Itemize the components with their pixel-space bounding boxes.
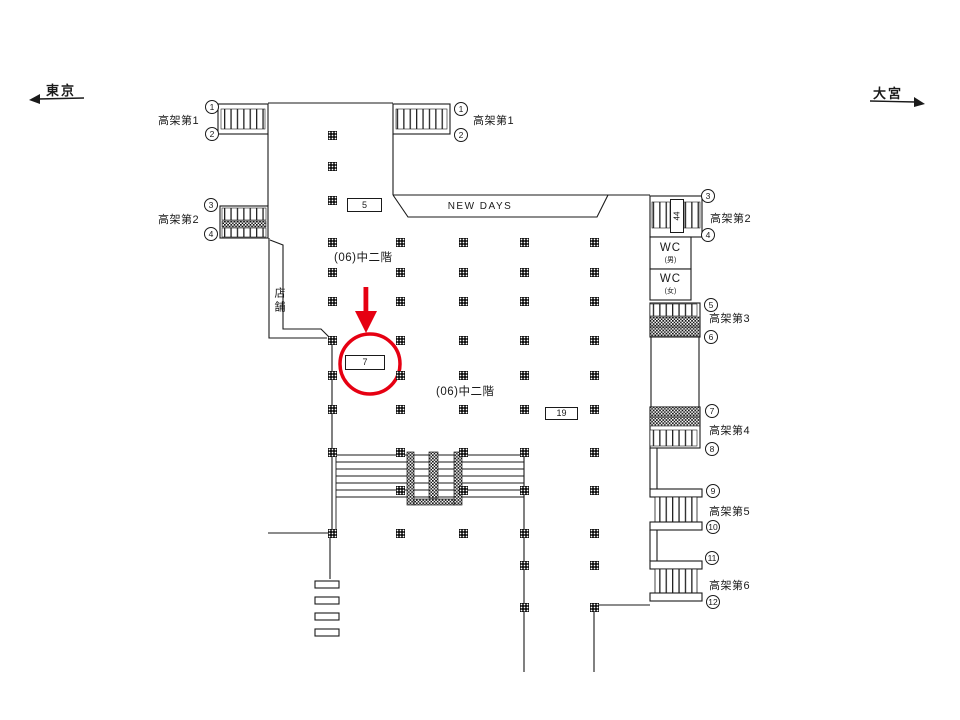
wc-men-label: WC (男) xyxy=(650,239,691,267)
escalator-segments xyxy=(315,581,339,636)
pillar xyxy=(520,448,529,457)
pillar xyxy=(328,336,337,345)
highlight-annotation xyxy=(340,287,400,394)
pillar xyxy=(328,196,337,205)
pillar xyxy=(328,371,337,380)
position-number-9: 9 xyxy=(706,484,720,498)
pillar xyxy=(520,371,529,380)
pillar xyxy=(520,405,529,414)
position-number-7: 7 xyxy=(705,404,719,418)
position-number-4-left: 4 xyxy=(204,227,218,241)
position-number-6: 6 xyxy=(704,330,718,344)
pillar xyxy=(459,405,468,414)
direction-label-omiya: 大宮 xyxy=(873,83,903,102)
shop-label: 店舗 xyxy=(271,287,287,315)
wc-women-gender: (女) xyxy=(665,286,677,296)
pillar xyxy=(459,238,468,247)
floorplan-linework xyxy=(0,0,960,720)
stairs-kouka6-right xyxy=(650,561,702,601)
pillar xyxy=(520,603,529,612)
pillar xyxy=(459,486,468,495)
label-kouka2-left: 高架第2 xyxy=(158,211,199,227)
pillar xyxy=(328,162,337,171)
label-kouka4-right: 高架第4 xyxy=(709,422,750,438)
position-number-1-left: 1 xyxy=(205,100,219,114)
pillar xyxy=(590,371,599,380)
pillar xyxy=(459,448,468,457)
highlight-arrow-head xyxy=(355,311,377,333)
position-number-1-top: 1 xyxy=(454,102,468,116)
pillar xyxy=(328,131,337,140)
direction-label-tokyo: 東京 xyxy=(46,80,76,99)
position-number-8: 8 xyxy=(705,442,719,456)
pillar xyxy=(396,268,405,277)
pillar xyxy=(520,268,529,277)
pillar xyxy=(590,405,599,414)
pillar xyxy=(396,486,405,495)
pillar xyxy=(459,529,468,538)
pillar xyxy=(396,297,405,306)
highlight-arrow-shaft xyxy=(364,287,369,313)
pillar xyxy=(328,448,337,457)
position-number-2-top: 2 xyxy=(454,128,468,142)
stairs-kouka4-right xyxy=(650,407,700,448)
pillar xyxy=(590,486,599,495)
label-kouka5-right: 高架第5 xyxy=(709,503,750,519)
wc-men-gender: (男) xyxy=(665,255,677,265)
wc-women-title: WC xyxy=(660,273,681,285)
pillar xyxy=(459,371,468,380)
position-number-12: 12 xyxy=(706,595,720,609)
pillar xyxy=(520,486,529,495)
wc-men-title: WC xyxy=(660,242,681,254)
pillar xyxy=(328,529,337,538)
ad-sign-44-text: 44 xyxy=(673,212,681,221)
stairs-kouka1-top xyxy=(393,104,450,134)
pillar xyxy=(396,238,405,247)
station-floorplan: 東京 大宮 高架第1 高架第1 高架第2 高架第2 高架第3 高架第4 高架第5… xyxy=(0,0,960,720)
position-number-10: 10 xyxy=(706,520,720,534)
stairs-kouka2-left xyxy=(220,206,268,238)
stairs-kouka3-right xyxy=(650,303,700,337)
pillar xyxy=(328,268,337,277)
mezzanine-label-upper: (06)中二階 xyxy=(334,249,392,265)
pillar xyxy=(396,405,405,414)
label-kouka6-right: 高架第6 xyxy=(709,577,750,593)
pillar xyxy=(328,297,337,306)
position-number-11: 11 xyxy=(705,551,719,565)
position-number-5: 5 xyxy=(704,298,718,312)
stairs-kouka5-right xyxy=(650,489,702,530)
pillar xyxy=(590,238,599,247)
position-number-4-right: 4 xyxy=(701,228,715,242)
pillar xyxy=(590,268,599,277)
pillar xyxy=(396,371,405,380)
pillar xyxy=(590,561,599,570)
pillar xyxy=(520,297,529,306)
pillar xyxy=(396,336,405,345)
new-days-label: NEW DAYS xyxy=(430,201,530,212)
position-number-3-right: 3 xyxy=(701,189,715,203)
label-kouka2-right: 高架第2 xyxy=(710,210,751,226)
label-kouka1-left: 高架第1 xyxy=(158,112,199,128)
ad-sign-44: 44 xyxy=(670,199,684,233)
position-number-2-left: 2 xyxy=(205,127,219,141)
pillar xyxy=(590,448,599,457)
pillar xyxy=(459,336,468,345)
stairs-kouka1-left xyxy=(218,104,268,134)
pillar xyxy=(328,405,337,414)
pillar xyxy=(459,297,468,306)
pillar xyxy=(459,268,468,277)
ad-sign-5: 5 xyxy=(347,198,382,212)
position-number-3-left: 3 xyxy=(204,198,218,212)
pillar xyxy=(590,603,599,612)
label-kouka3-right: 高架第3 xyxy=(709,310,750,326)
pillar xyxy=(328,238,337,247)
pillar xyxy=(590,297,599,306)
pillar xyxy=(520,561,529,570)
pillar xyxy=(520,336,529,345)
wc-women-label: WC (女) xyxy=(650,270,691,298)
pillar xyxy=(520,529,529,538)
pillar xyxy=(590,529,599,538)
pillar xyxy=(590,336,599,345)
ad-sign-7-highlighted: 7 xyxy=(345,355,385,370)
ad-sign-19: 19 xyxy=(545,407,578,420)
pillar xyxy=(396,529,405,538)
pillar xyxy=(396,448,405,457)
mezzanine-label-lower: (06)中二階 xyxy=(436,383,494,399)
label-kouka1-top: 高架第1 xyxy=(473,112,514,128)
pillar xyxy=(520,238,529,247)
